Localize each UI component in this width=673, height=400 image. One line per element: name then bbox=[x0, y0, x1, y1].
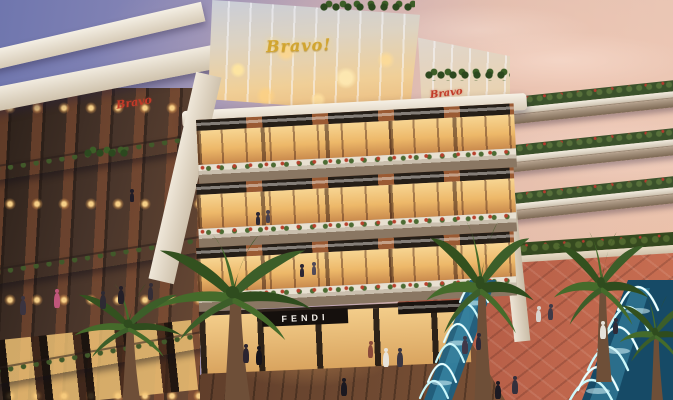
pedestrian bbox=[536, 310, 541, 322]
pedestrian bbox=[397, 352, 403, 367]
mall-rendering-scene: Bravo Bravo! Bravo FENDI bbox=[0, 0, 673, 400]
atrium-logo-sign: Bravo! bbox=[266, 35, 332, 56]
pedestrian bbox=[20, 300, 26, 315]
pedestrian bbox=[341, 382, 347, 396]
pedestrian bbox=[100, 295, 106, 309]
pedestrian bbox=[462, 340, 468, 354]
pedestrian bbox=[118, 290, 124, 304]
balcony-visitor bbox=[130, 193, 134, 202]
pedestrian bbox=[613, 322, 618, 334]
pedestrian bbox=[54, 293, 60, 308]
balcony-visitor bbox=[300, 268, 304, 277]
rooftop-hedge bbox=[84, 146, 128, 157]
palm-tree bbox=[618, 296, 673, 400]
pedestrian bbox=[600, 325, 606, 339]
balcony-visitor bbox=[266, 214, 270, 223]
palm-tree bbox=[72, 284, 184, 400]
pedestrian bbox=[548, 308, 553, 320]
pedestrian bbox=[512, 380, 518, 394]
pedestrian bbox=[256, 350, 262, 365]
pedestrian bbox=[476, 337, 481, 350]
pedestrian bbox=[148, 287, 153, 300]
balcony-visitor bbox=[312, 266, 316, 275]
pedestrian bbox=[368, 345, 373, 358]
pedestrian bbox=[495, 385, 501, 399]
balcony-visitor bbox=[256, 216, 260, 225]
pedestrian bbox=[383, 352, 389, 367]
rooftop-hedge bbox=[425, 68, 510, 81]
rooftop-hedge bbox=[320, 0, 415, 11]
pedestrian bbox=[243, 348, 249, 363]
palm-tree bbox=[424, 222, 536, 400]
